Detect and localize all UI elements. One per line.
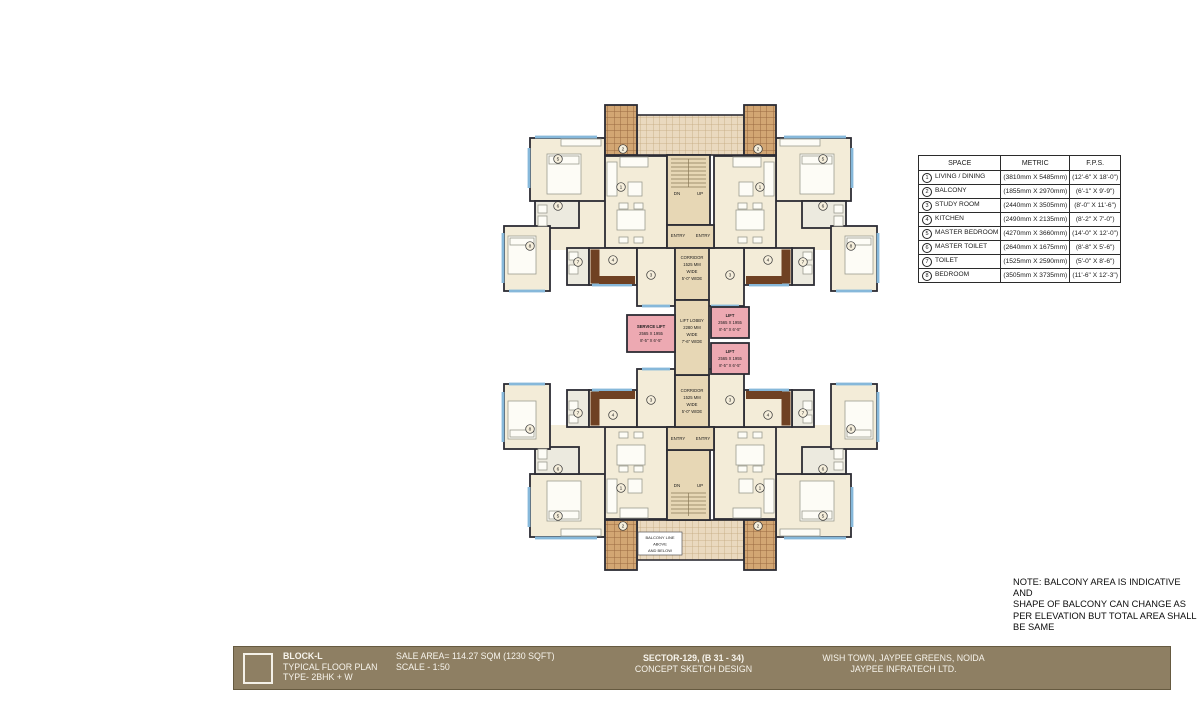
room-number: 7 bbox=[802, 260, 805, 266]
block-info: BLOCK-L TYPICAL FLOOR PLAN TYPE- 2BHK + … bbox=[283, 651, 378, 683]
design-stage: CONCEPT SKETCH DESIGN bbox=[591, 664, 796, 675]
window bbox=[851, 487, 854, 527]
furniture bbox=[738, 466, 747, 472]
furniture bbox=[782, 250, 791, 284]
block-name: BLOCK-L bbox=[283, 651, 378, 662]
room-number: 3 bbox=[650, 273, 653, 279]
corridor-label: 5'-0" WIDE bbox=[682, 276, 703, 281]
corridor-label: 1525 MM bbox=[683, 262, 701, 267]
furniture bbox=[634, 237, 643, 243]
legend-body: 1LIVING / DINING(3810mm X 5485mm)(12'-6"… bbox=[919, 171, 1121, 283]
drawing-sheet: { "legend": { "headers": ["SPACE", "METR… bbox=[0, 0, 1200, 707]
window bbox=[509, 383, 545, 386]
note-line: PER ELEVATION BUT TOTAL AREA SHALL bbox=[1013, 611, 1200, 622]
room-number: 4 bbox=[767, 413, 770, 419]
furniture bbox=[739, 182, 753, 196]
furniture bbox=[607, 162, 617, 196]
window bbox=[592, 284, 632, 287]
furniture bbox=[780, 529, 820, 536]
room-number: 2 bbox=[757, 524, 760, 530]
sale-area: SALE AREA= 114.27 SQM (1230 SQFT) bbox=[396, 651, 555, 662]
legend-row: 7TOILET(1525mm X 2590mm)(5'-0" X 8'-6") bbox=[919, 255, 1121, 269]
window bbox=[502, 233, 505, 283]
room-number: 5 bbox=[822, 514, 825, 520]
lift-lobby-label: 2280 MM bbox=[683, 325, 701, 330]
furniture bbox=[561, 139, 601, 146]
furniture bbox=[764, 479, 774, 513]
room-number: 1 bbox=[759, 185, 762, 191]
entry-label: ENTRY bbox=[696, 233, 711, 238]
room-number: 2 bbox=[757, 147, 760, 153]
scale: SCALE - 1:50 bbox=[396, 662, 555, 673]
furniture bbox=[538, 216, 547, 226]
corridor-label: WIDE bbox=[687, 269, 698, 274]
room-number-badge: 3 bbox=[922, 201, 932, 211]
furniture bbox=[733, 508, 761, 518]
legend-fps-cell: (14'-0" X 12'-0") bbox=[1070, 227, 1121, 241]
room-number: 7 bbox=[577, 260, 580, 266]
room-number: 2 bbox=[622, 524, 625, 530]
furniture bbox=[736, 445, 764, 465]
lift-label: 2565 X 1955 bbox=[718, 356, 742, 361]
room-number: 6 bbox=[557, 204, 560, 210]
legend-metric-cell: (2640mm X 1675mm) bbox=[1001, 241, 1070, 255]
legend-space-cell: 3STUDY ROOM bbox=[919, 199, 1001, 213]
window bbox=[642, 305, 670, 308]
lift-lobby bbox=[675, 300, 709, 375]
room-number-badge: 6 bbox=[922, 243, 932, 253]
window bbox=[877, 233, 880, 283]
window bbox=[749, 284, 789, 287]
room-number-badge: 4 bbox=[922, 215, 932, 225]
room-number: 8 bbox=[529, 427, 532, 433]
window bbox=[784, 136, 846, 139]
room-number: 8 bbox=[850, 244, 853, 250]
balcony-note: NOTE: BALCONY AREA IS INDICATIVE AND SHA… bbox=[1013, 577, 1200, 633]
room-number: 5 bbox=[557, 157, 560, 163]
window bbox=[509, 290, 545, 293]
furniture bbox=[619, 203, 628, 209]
room bbox=[637, 248, 675, 306]
legend-header-row: SPACE METRIC F.P.S. bbox=[919, 156, 1121, 171]
stairs-up-label: UP bbox=[697, 483, 703, 488]
space-legend-table: SPACE METRIC F.P.S. 1LIVING / DINING(381… bbox=[918, 155, 1121, 283]
furniture bbox=[753, 466, 762, 472]
entry-label: ENTRY bbox=[671, 436, 686, 441]
window bbox=[528, 487, 531, 527]
furniture bbox=[599, 391, 635, 399]
lift-label: 2565 X 1955 bbox=[718, 320, 742, 325]
balcony-line-label: AND BELOW bbox=[648, 548, 672, 553]
legend-metric-cell: (2490mm X 2135mm) bbox=[1001, 213, 1070, 227]
window bbox=[877, 392, 880, 442]
note-line: SHAPE OF BALCONY CAN CHANGE AS bbox=[1013, 599, 1200, 610]
area-info: SALE AREA= 114.27 SQM (1230 SQFT) SCALE … bbox=[396, 651, 555, 672]
window bbox=[784, 537, 846, 540]
room-number: 4 bbox=[612, 258, 615, 264]
terrace bbox=[637, 115, 744, 155]
furniture bbox=[634, 466, 643, 472]
stairs-up-label: UP bbox=[697, 191, 703, 196]
room-number: 3 bbox=[729, 273, 732, 279]
furniture bbox=[619, 432, 628, 438]
note-line: BE SAME bbox=[1013, 622, 1200, 633]
room-number: 5 bbox=[822, 157, 825, 163]
unit-type: TYPE- 2BHK + W bbox=[283, 672, 378, 683]
furniture bbox=[620, 508, 648, 518]
legend-space-cell: 4KITCHEN bbox=[919, 213, 1001, 227]
furniture bbox=[753, 237, 762, 243]
logo-placeholder bbox=[243, 653, 273, 684]
window bbox=[502, 392, 505, 442]
room-number: 4 bbox=[612, 413, 615, 419]
room-number-badge: 1 bbox=[922, 173, 932, 183]
furniture bbox=[538, 449, 547, 459]
window bbox=[836, 290, 872, 293]
legend-metric-cell: (4270mm X 3660mm) bbox=[1001, 227, 1070, 241]
lift-label: 8'-5" X 6'-5" bbox=[719, 363, 741, 368]
furniture bbox=[739, 479, 753, 493]
legend-fps-cell: (8'-8" X 5'-6") bbox=[1070, 241, 1121, 255]
service-lift-label: 8'-5" X 6'-5" bbox=[640, 338, 662, 343]
lift-label: LIFT bbox=[726, 349, 735, 354]
balcony-line-label: ABOVE bbox=[653, 542, 667, 547]
legend-fps-cell: (12'-6" X 18'-0") bbox=[1070, 171, 1121, 185]
legend-row: 3STUDY ROOM(2440mm X 3505mm)(8'-0" X 11'… bbox=[919, 199, 1121, 213]
furniture bbox=[738, 237, 747, 243]
corridor-label: WIDE bbox=[687, 402, 698, 407]
furniture bbox=[753, 203, 762, 209]
furniture bbox=[628, 479, 642, 493]
legend-row: 4KITCHEN(2490mm X 2135mm)(8'-2" X 7'-0") bbox=[919, 213, 1121, 227]
furniture bbox=[561, 529, 601, 536]
legend-row: 1LIVING / DINING(3810mm X 5485mm)(12'-6"… bbox=[919, 171, 1121, 185]
entry-label: ENTRY bbox=[671, 233, 686, 238]
room-number: 3 bbox=[729, 398, 732, 404]
room-number: 6 bbox=[822, 467, 825, 473]
window bbox=[851, 148, 854, 188]
room-number: 6 bbox=[822, 204, 825, 210]
legend-metric-cell: (2440mm X 3505mm) bbox=[1001, 199, 1070, 213]
corridor-label: 1525 MM bbox=[683, 395, 701, 400]
service-lift-label: SERVICE LIFT bbox=[637, 324, 666, 329]
balcony-line-label: BALCONY LINE bbox=[645, 535, 674, 540]
legend-metric-cell: (3810mm X 5485mm) bbox=[1001, 171, 1070, 185]
legend-row: 5MASTER BEDROOM(4270mm X 3660mm)(14'-0" … bbox=[919, 227, 1121, 241]
legend-fps-cell: (6'-1" X 9'-9") bbox=[1070, 185, 1121, 199]
furniture bbox=[780, 139, 820, 146]
room-number: 7 bbox=[802, 411, 805, 417]
window bbox=[535, 136, 597, 139]
furniture bbox=[746, 276, 782, 284]
room-number: 6 bbox=[557, 467, 560, 473]
room-number: 3 bbox=[650, 398, 653, 404]
window bbox=[592, 389, 632, 392]
lift-lobby-label: WIDE bbox=[687, 332, 698, 337]
room-number-badge: 5 bbox=[922, 229, 932, 239]
furniture bbox=[634, 432, 643, 438]
lift-label: 8'-5" X 6'-5" bbox=[719, 327, 741, 332]
furniture bbox=[834, 216, 843, 226]
stairs-down-label: DN bbox=[674, 483, 681, 488]
note-line: NOTE: BALCONY AREA IS INDICATIVE AND bbox=[1013, 577, 1200, 599]
room-number: 4 bbox=[767, 258, 770, 264]
legend-header-metric: METRIC bbox=[1001, 156, 1070, 171]
company-info: WISH TOWN, JAYPEE GREENS, NOIDA JAYPEE I… bbox=[791, 653, 1016, 674]
furniture bbox=[619, 237, 628, 243]
room-number: 8 bbox=[529, 244, 532, 250]
company-name: JAYPEE INFRATECH LTD. bbox=[791, 664, 1016, 675]
legend-metric-cell: (1525mm X 2590mm) bbox=[1001, 255, 1070, 269]
entry-label: ENTRY bbox=[696, 436, 711, 441]
legend-space-cell: 5MASTER BEDROOM bbox=[919, 227, 1001, 241]
furniture bbox=[764, 162, 774, 196]
furniture bbox=[736, 210, 764, 230]
legend-fps-cell: (8'-0" X 11'-6") bbox=[1070, 199, 1121, 213]
corridor-label: 5'-0" WIDE bbox=[682, 409, 703, 414]
floor-plan: DNUPDNUPENTRYENTRYENTRYENTRYCORRIDOR1525… bbox=[497, 98, 884, 577]
furniture bbox=[628, 182, 642, 196]
legend-space-cell: 2BALCONY bbox=[919, 185, 1001, 199]
furniture bbox=[617, 445, 645, 465]
furniture bbox=[782, 392, 791, 426]
furniture bbox=[620, 157, 648, 167]
sector-name: SECTOR-129, (B 31 - 34) bbox=[591, 653, 796, 664]
sector-info: SECTOR-129, (B 31 - 34) CONCEPT SKETCH D… bbox=[591, 653, 796, 674]
furniture bbox=[738, 432, 747, 438]
service-lift-label: 2565 X 1955 bbox=[639, 331, 663, 336]
room-number: 2 bbox=[622, 147, 625, 153]
window bbox=[642, 368, 670, 371]
furniture bbox=[591, 250, 600, 284]
legend-row: 6MASTER TOILET(2640mm X 1675mm)(8'-8" X … bbox=[919, 241, 1121, 255]
legend-metric-cell: (1855mm X 2970mm) bbox=[1001, 185, 1070, 199]
furniture bbox=[834, 462, 843, 470]
furniture bbox=[599, 276, 635, 284]
room-number: 1 bbox=[620, 486, 623, 492]
furniture bbox=[738, 203, 747, 209]
legend-header-fps: F.P.S. bbox=[1070, 156, 1121, 171]
furniture bbox=[834, 449, 843, 459]
room-number-badge: 8 bbox=[922, 271, 932, 281]
furniture bbox=[733, 157, 761, 167]
furniture bbox=[617, 210, 645, 230]
furniture bbox=[538, 462, 547, 470]
lift-lobby-label: LIFT LOBBY bbox=[680, 318, 704, 323]
window bbox=[836, 383, 872, 386]
room bbox=[706, 248, 744, 306]
lift-lobby-label: 7'-6" WIDE bbox=[682, 339, 703, 344]
legend-row: 8BEDROOM(3505mm X 3735mm)(11'-6" X 12'-3… bbox=[919, 269, 1121, 283]
room-number: 1 bbox=[759, 486, 762, 492]
corridor-label: CORRIDOR bbox=[681, 388, 704, 393]
legend-header-space: SPACE bbox=[919, 156, 1001, 171]
furniture bbox=[834, 205, 843, 213]
room-number: 1 bbox=[620, 185, 623, 191]
furniture bbox=[746, 391, 782, 399]
furniture bbox=[753, 432, 762, 438]
legend-space-cell: 1LIVING / DINING bbox=[919, 171, 1001, 185]
legend-fps-cell: (11'-6" X 12'-3") bbox=[1070, 269, 1121, 283]
legend-fps-cell: (8'-2" X 7'-0") bbox=[1070, 213, 1121, 227]
legend-space-cell: 8BEDROOM bbox=[919, 269, 1001, 283]
legend-space-cell: 6MASTER TOILET bbox=[919, 241, 1001, 255]
room-number-badge: 7 bbox=[922, 257, 932, 267]
furniture bbox=[538, 205, 547, 213]
room bbox=[706, 369, 744, 427]
legend-metric-cell: (3505mm X 3735mm) bbox=[1001, 269, 1070, 283]
room-number-badge: 2 bbox=[922, 187, 932, 197]
corridor-label: CORRIDOR bbox=[681, 255, 704, 260]
furniture bbox=[634, 203, 643, 209]
plan-type: TYPICAL FLOOR PLAN bbox=[283, 662, 378, 673]
corridor bbox=[675, 375, 709, 427]
legend-row: 2BALCONY(1855mm X 2970mm)(6'-1" X 9'-9") bbox=[919, 185, 1121, 199]
lift-label: LIFT bbox=[726, 313, 735, 318]
window bbox=[749, 389, 789, 392]
furniture bbox=[619, 466, 628, 472]
room bbox=[637, 369, 675, 427]
legend-space-cell: 7TOILET bbox=[919, 255, 1001, 269]
title-bar: BLOCK-L TYPICAL FLOOR PLAN TYPE- 2BHK + … bbox=[233, 646, 1171, 690]
legend-fps-cell: (5'-0" X 8'-6") bbox=[1070, 255, 1121, 269]
window bbox=[528, 148, 531, 188]
stairs-down-label: DN bbox=[674, 191, 681, 196]
room-number: 8 bbox=[850, 427, 853, 433]
project-location: WISH TOWN, JAYPEE GREENS, NOIDA bbox=[791, 653, 1016, 664]
furniture bbox=[607, 479, 617, 513]
furniture bbox=[591, 392, 600, 426]
room-number: 5 bbox=[557, 514, 560, 520]
window bbox=[535, 537, 597, 540]
room-number: 7 bbox=[577, 411, 580, 417]
